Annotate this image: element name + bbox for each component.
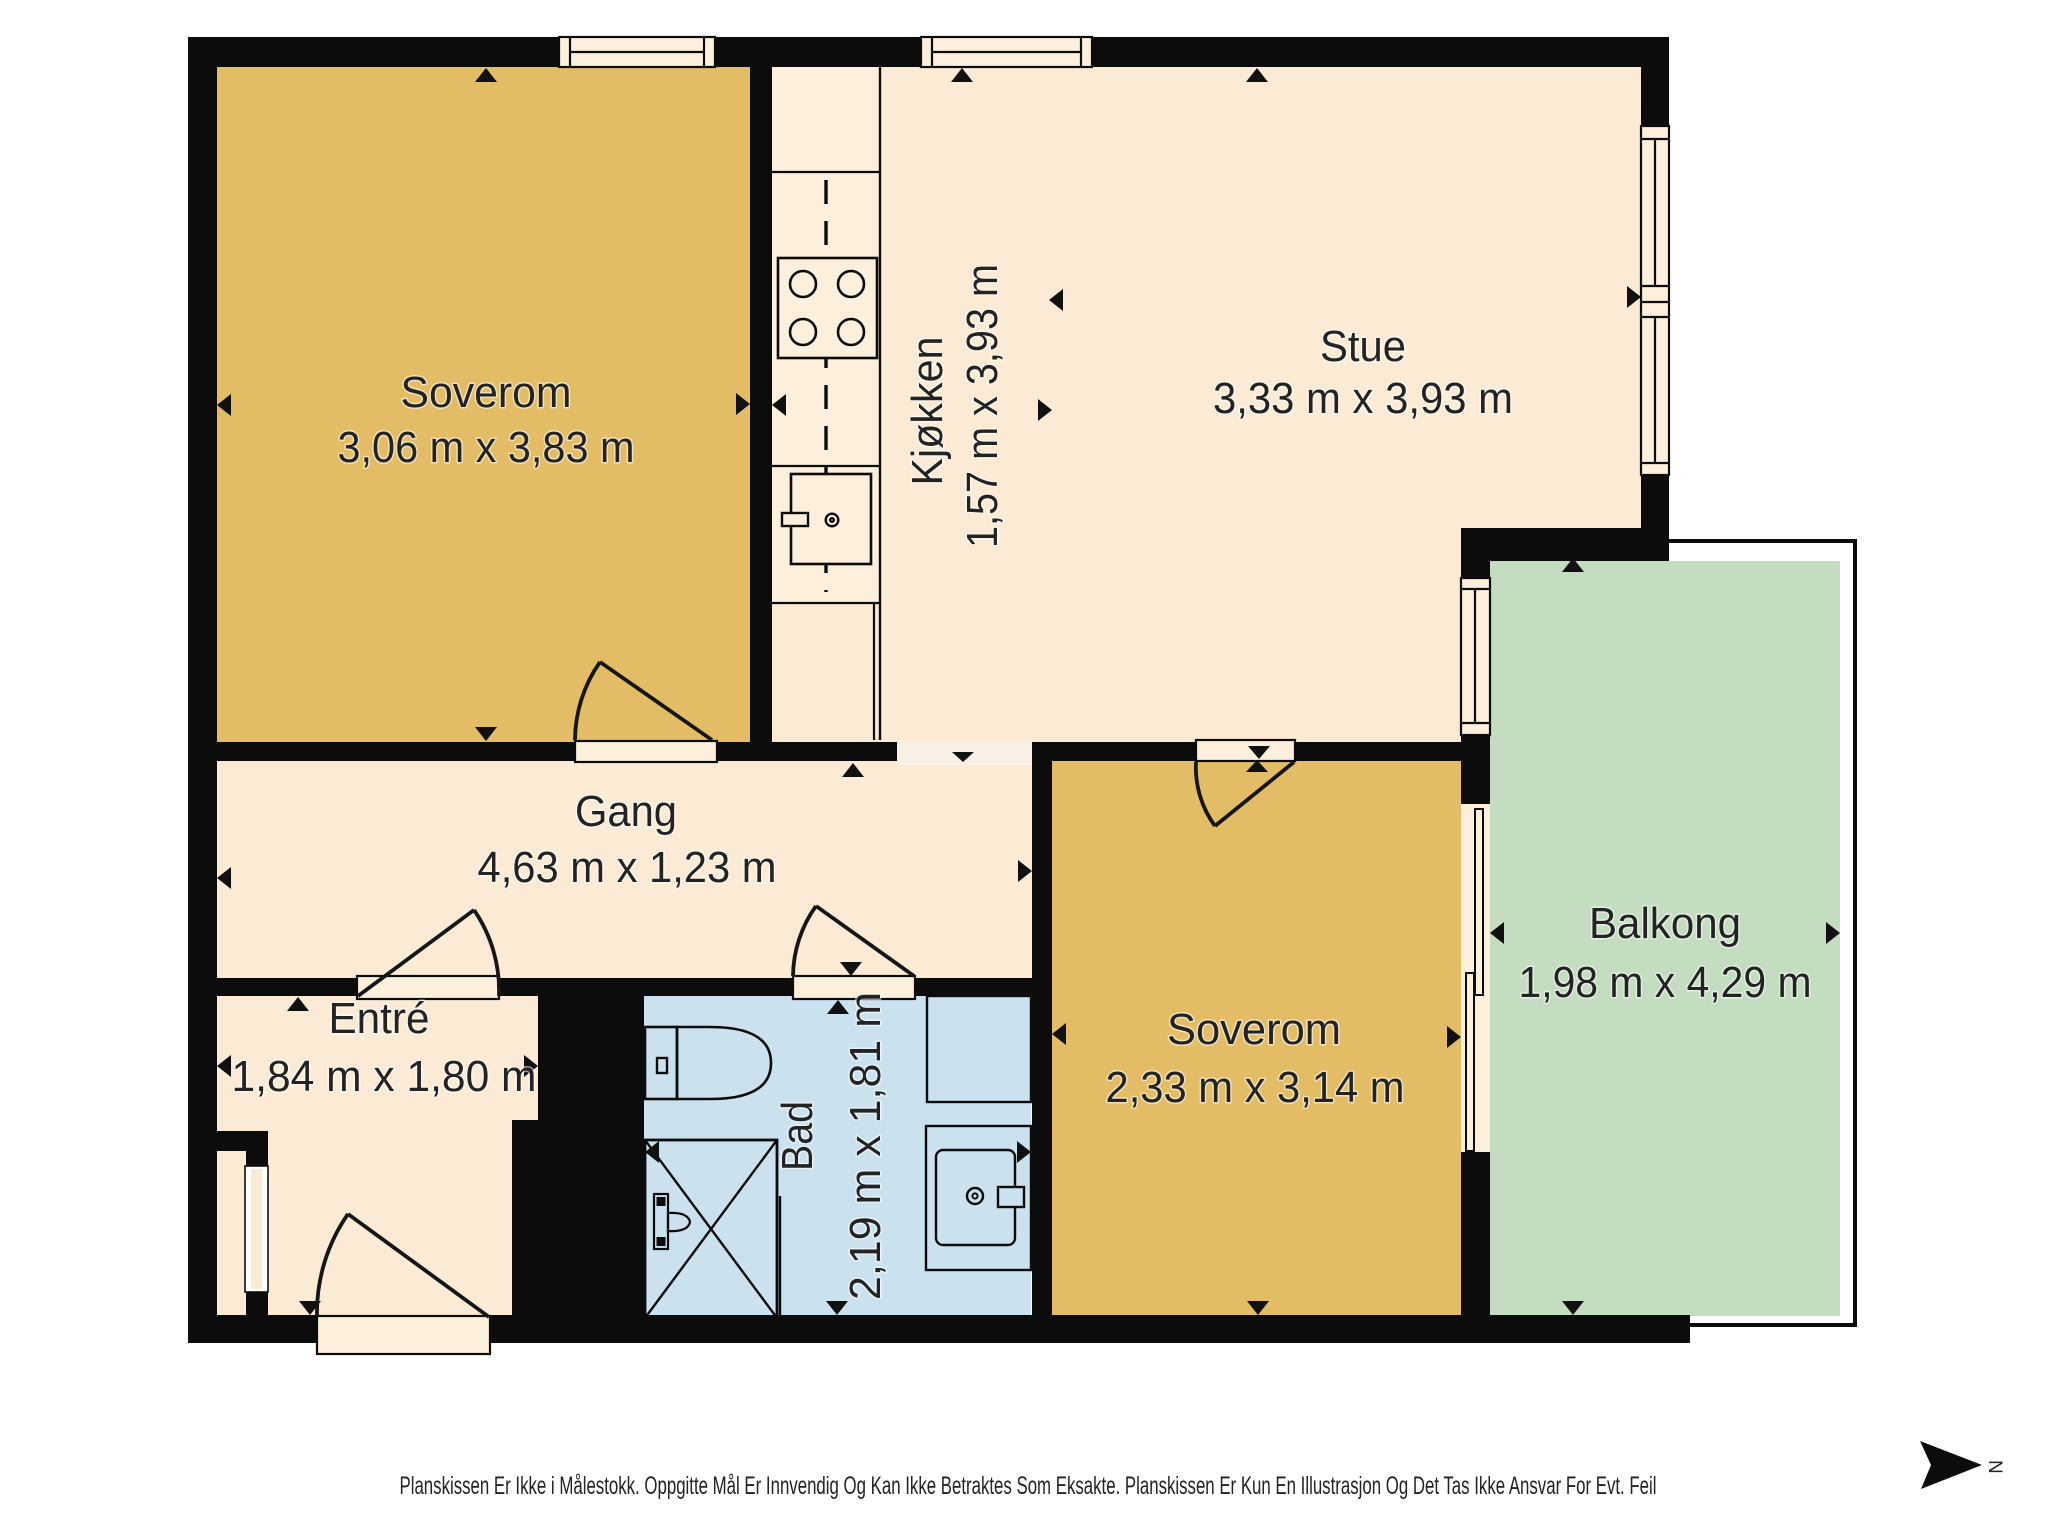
svg-text:1,98 m x 4,29 m: 1,98 m x 4,29 m bbox=[1519, 958, 1812, 1007]
svg-text:1,57 m x 3,93 m: 1,57 m x 3,93 m bbox=[958, 264, 1007, 548]
svg-text:Planskissen Er Ikke i Målestok: Planskissen Er Ikke i Målestokk. Oppgitt… bbox=[400, 1472, 1657, 1500]
svg-text:Kjøkken: Kjøkken bbox=[903, 337, 952, 486]
svg-text:Gang: Gang bbox=[575, 787, 677, 836]
svg-text:Stue: Stue bbox=[1320, 322, 1406, 371]
svg-text:3,06 m x 3,83 m: 3,06 m x 3,83 m bbox=[338, 423, 635, 472]
svg-text:N: N bbox=[1984, 1460, 2005, 1474]
svg-text:1,84 m x 1,80 m: 1,84 m x 1,80 m bbox=[232, 1052, 537, 1101]
svg-text:Soverom: Soverom bbox=[401, 368, 572, 417]
svg-text:2,33 m x 3,14 m: 2,33 m x 3,14 m bbox=[1106, 1063, 1405, 1112]
svg-text:Soverom: Soverom bbox=[1167, 1005, 1341, 1054]
svg-text:4,63 m x 1,23 m: 4,63 m x 1,23 m bbox=[478, 843, 777, 892]
svg-text:Balkong: Balkong bbox=[1589, 899, 1741, 948]
svg-text:Entré: Entré bbox=[329, 994, 430, 1043]
svg-text:2,19 m x 1,81 m: 2,19 m x 1,81 m bbox=[841, 992, 890, 1300]
svg-text:3,33 m x 3,93 m: 3,33 m x 3,93 m bbox=[1213, 374, 1513, 423]
svg-text:Bad: Bad bbox=[773, 1101, 822, 1171]
